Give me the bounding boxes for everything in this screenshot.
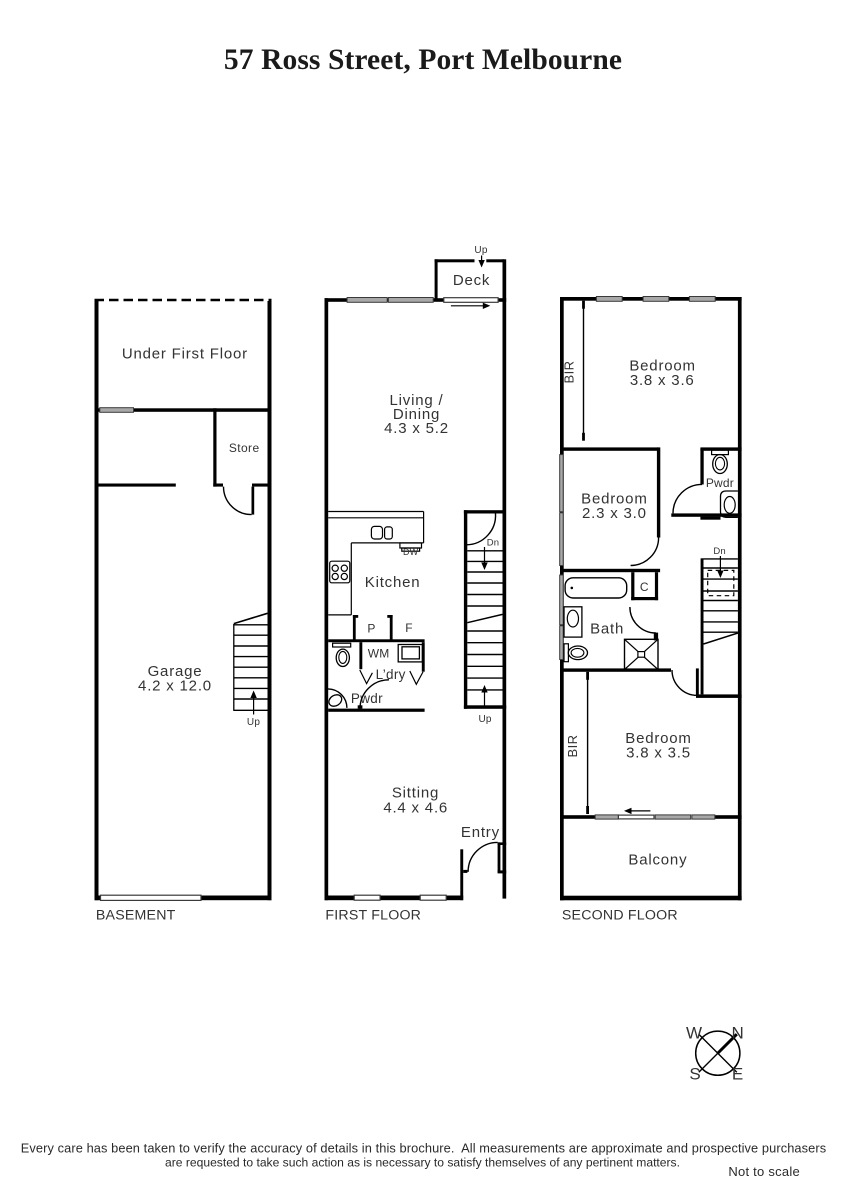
svg-text:BIR: BIR (562, 361, 577, 384)
svg-text:Every care has been taken to v: Every care has been taken to verify the … (21, 1141, 826, 1156)
svg-text:57 Ross Street, Port Melbourne: 57 Ross Street, Port Melbourne (224, 44, 622, 76)
svg-text:WM: WM (368, 647, 390, 661)
svg-text:Pwdr: Pwdr (706, 476, 734, 490)
svg-text:Balcony: Balcony (628, 852, 687, 869)
svg-text:Deck: Deck (453, 272, 490, 289)
svg-text:N: N (731, 1024, 743, 1043)
svg-text:Dn: Dn (487, 538, 500, 549)
svg-text:L’dry: L’dry (376, 667, 406, 682)
svg-text:Up: Up (474, 245, 487, 256)
svg-text:Not to scale: Not to scale (728, 1164, 800, 1179)
svg-text:Up: Up (247, 717, 260, 728)
svg-text:3.8 x 3.6: 3.8 x 3.6 (630, 372, 695, 389)
svg-text:3.8 x 3.5: 3.8 x 3.5 (626, 745, 691, 762)
svg-text:Entry: Entry (461, 824, 500, 841)
svg-text:C: C (640, 580, 649, 594)
svg-text:SECOND FLOOR: SECOND FLOOR (562, 907, 678, 923)
svg-text:F: F (405, 621, 413, 635)
svg-text:W: W (686, 1024, 702, 1043)
svg-text:4.2 x 12.0: 4.2 x 12.0 (138, 678, 212, 695)
svg-text:are requested to take such act: are requested to take such action as is … (165, 1156, 680, 1170)
svg-text:4.3 x 5.2: 4.3 x 5.2 (384, 420, 449, 437)
svg-text:Under First Floor: Under First Floor (122, 346, 248, 363)
svg-text:P: P (367, 622, 375, 636)
svg-text:DW: DW (403, 547, 419, 557)
svg-text:Pwdr: Pwdr (351, 691, 383, 706)
svg-text:BIR: BIR (565, 735, 580, 758)
svg-text:2.3 x 3.0: 2.3 x 3.0 (582, 505, 647, 522)
svg-text:4.4 x 4.6: 4.4 x 4.6 (383, 799, 448, 816)
svg-text:E: E (732, 1064, 743, 1083)
svg-text:Kitchen: Kitchen (365, 574, 421, 591)
svg-text:Bath: Bath (590, 620, 624, 637)
svg-text:Store: Store (229, 441, 260, 455)
svg-text:Dn: Dn (713, 546, 726, 557)
svg-text:Up: Up (479, 714, 492, 725)
svg-text:BASEMENT: BASEMENT (96, 907, 176, 923)
svg-text:S: S (689, 1064, 700, 1083)
svg-text:FIRST FLOOR: FIRST FLOOR (325, 907, 421, 923)
